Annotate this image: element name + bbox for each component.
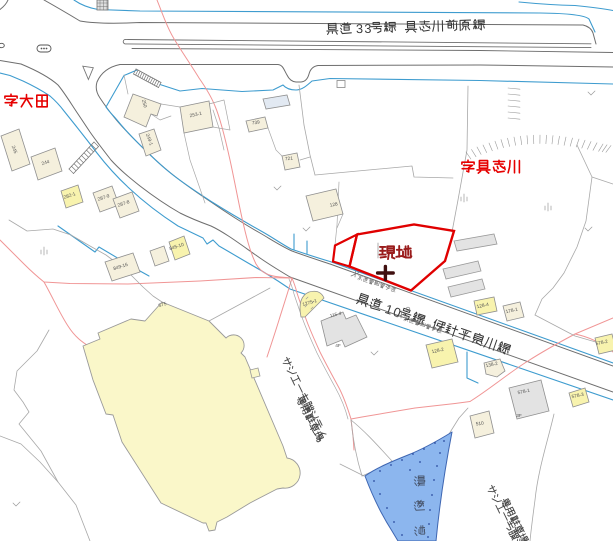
svg-text:510: 510: [475, 420, 484, 427]
svg-text:721: 721: [285, 156, 294, 163]
svg-text:4F: 4F: [335, 343, 341, 349]
svg-text:3: 3: [364, 22, 371, 36]
svg-text:3F: 3F: [516, 413, 522, 419]
svg-text:739: 739: [251, 119, 260, 126]
svg-text:3: 3: [356, 22, 363, 36]
